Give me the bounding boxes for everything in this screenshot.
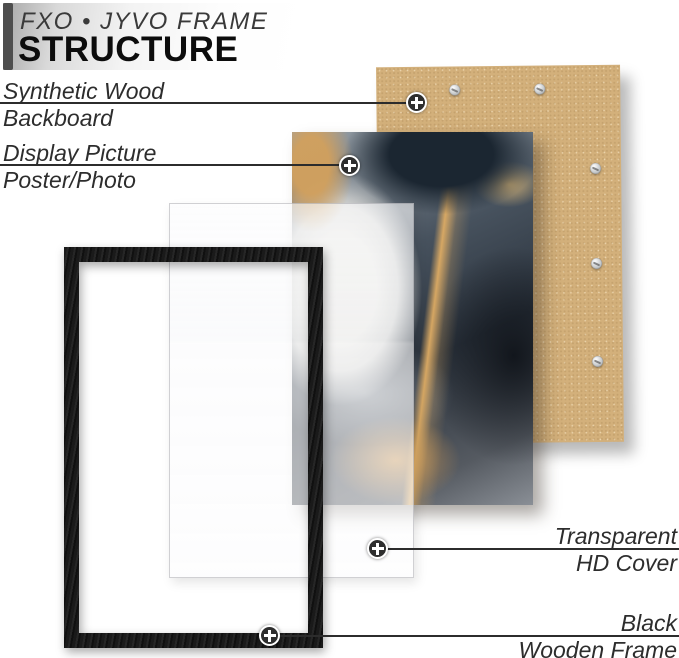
page-title: STRUCTURE <box>18 30 238 70</box>
screw-icon <box>449 84 460 95</box>
label-picture-line1: Display Picture <box>3 141 156 165</box>
label-cover-line2: HD Cover <box>576 551 677 575</box>
black-wooden-frame <box>64 247 323 648</box>
screw-icon <box>534 84 545 95</box>
product-structure-diagram: FXO • JYVO FRAME STRUCTURE Synthetic Woo… <box>0 0 679 658</box>
label-picture-line2: Poster/Photo <box>3 168 136 192</box>
plus-target-icon-backboard <box>406 92 427 113</box>
screw-icon <box>592 356 603 367</box>
banner-accent-bar <box>3 3 13 70</box>
label-backboard-line1: Synthetic Wood <box>3 79 164 103</box>
label-cover-line1: Transparent <box>555 524 677 548</box>
screw-icon <box>591 258 602 269</box>
label-frame-line1: Black <box>621 611 677 635</box>
screw-icon <box>590 163 601 174</box>
plus-target-icon-cover <box>367 538 388 559</box>
label-backboard-line2: Backboard <box>3 106 113 130</box>
plus-target-icon-picture <box>339 155 360 176</box>
plus-target-icon-frame <box>259 625 280 646</box>
label-frame-line2: Wooden Frame <box>518 638 677 658</box>
header-banner: FXO • JYVO FRAME STRUCTURE <box>3 3 295 70</box>
